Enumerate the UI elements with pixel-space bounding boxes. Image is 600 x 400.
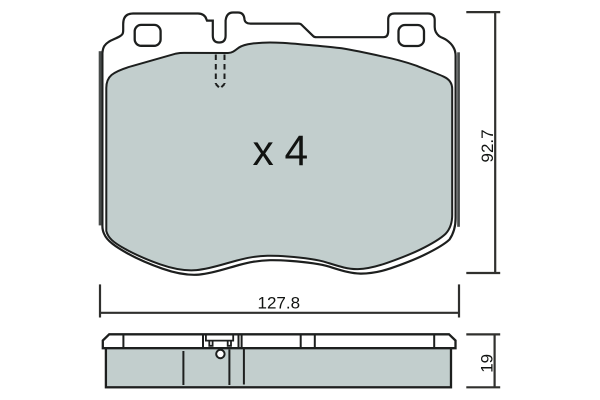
svg-text:19: 19 xyxy=(478,354,497,373)
svg-text:x 4: x 4 xyxy=(253,128,308,175)
svg-text:127.8: 127.8 xyxy=(258,294,301,313)
svg-text:92.7: 92.7 xyxy=(478,129,497,162)
